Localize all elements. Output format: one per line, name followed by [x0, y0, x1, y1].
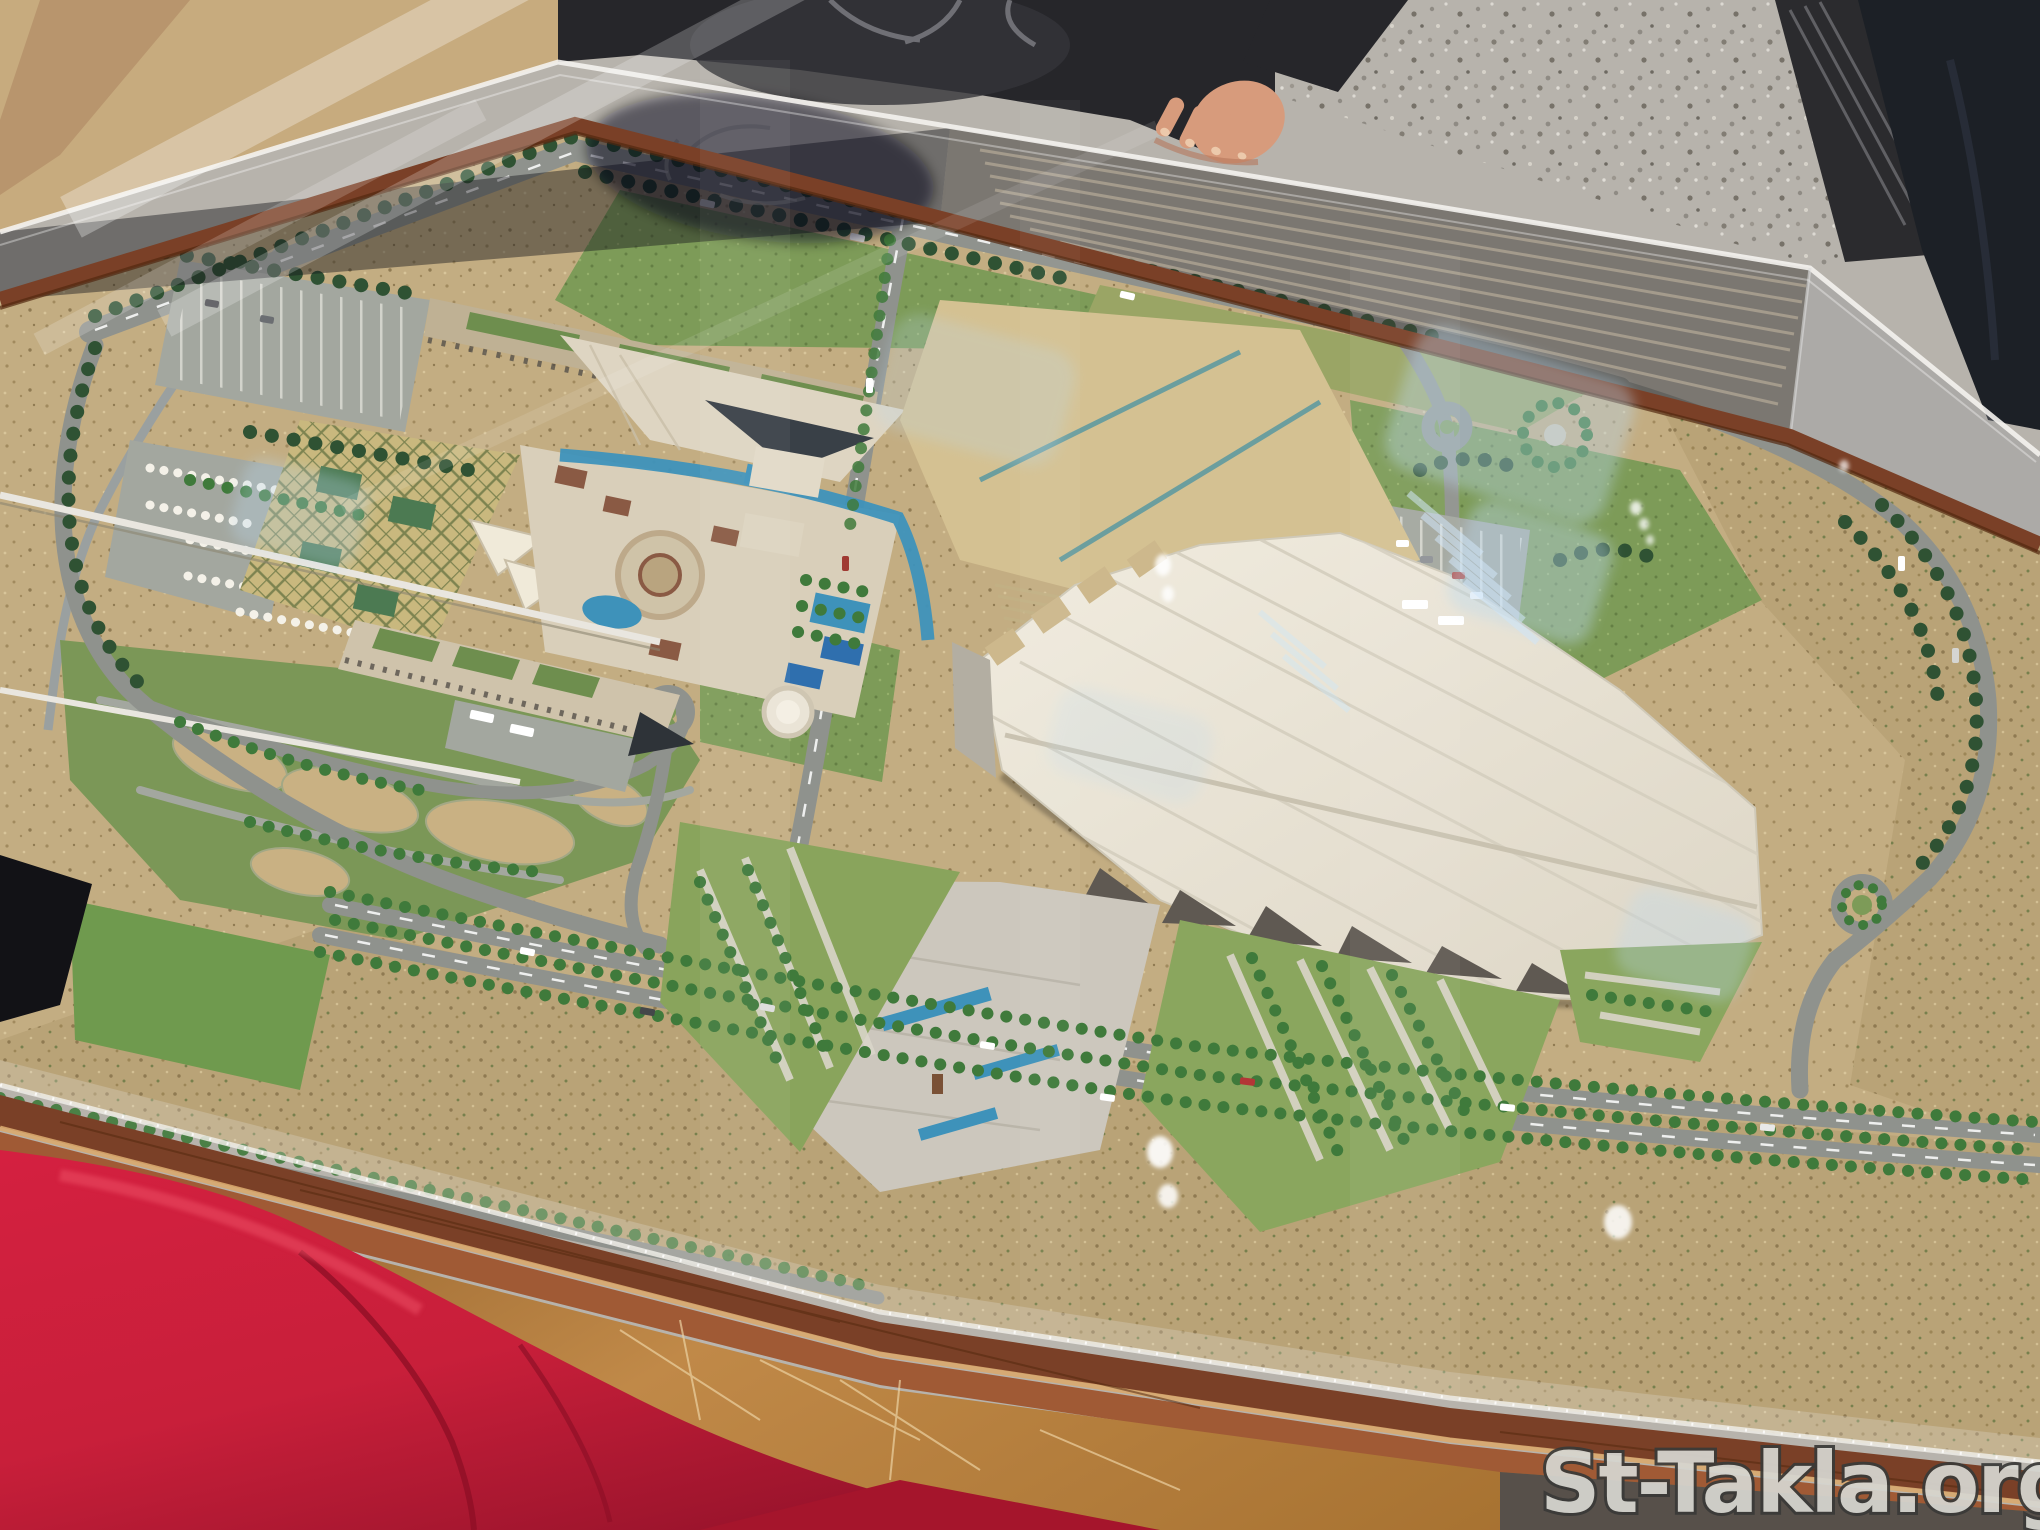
obelisk	[932, 1074, 943, 1094]
photo-scene: St-Takla.org	[0, 0, 2040, 1530]
hotel-courtyard-inner	[640, 555, 680, 595]
watermark: St-Takla.org	[1540, 1434, 2040, 1530]
roundabout-east-island	[1852, 895, 1872, 915]
scene-canvas: St-Takla.org	[0, 0, 2040, 1530]
